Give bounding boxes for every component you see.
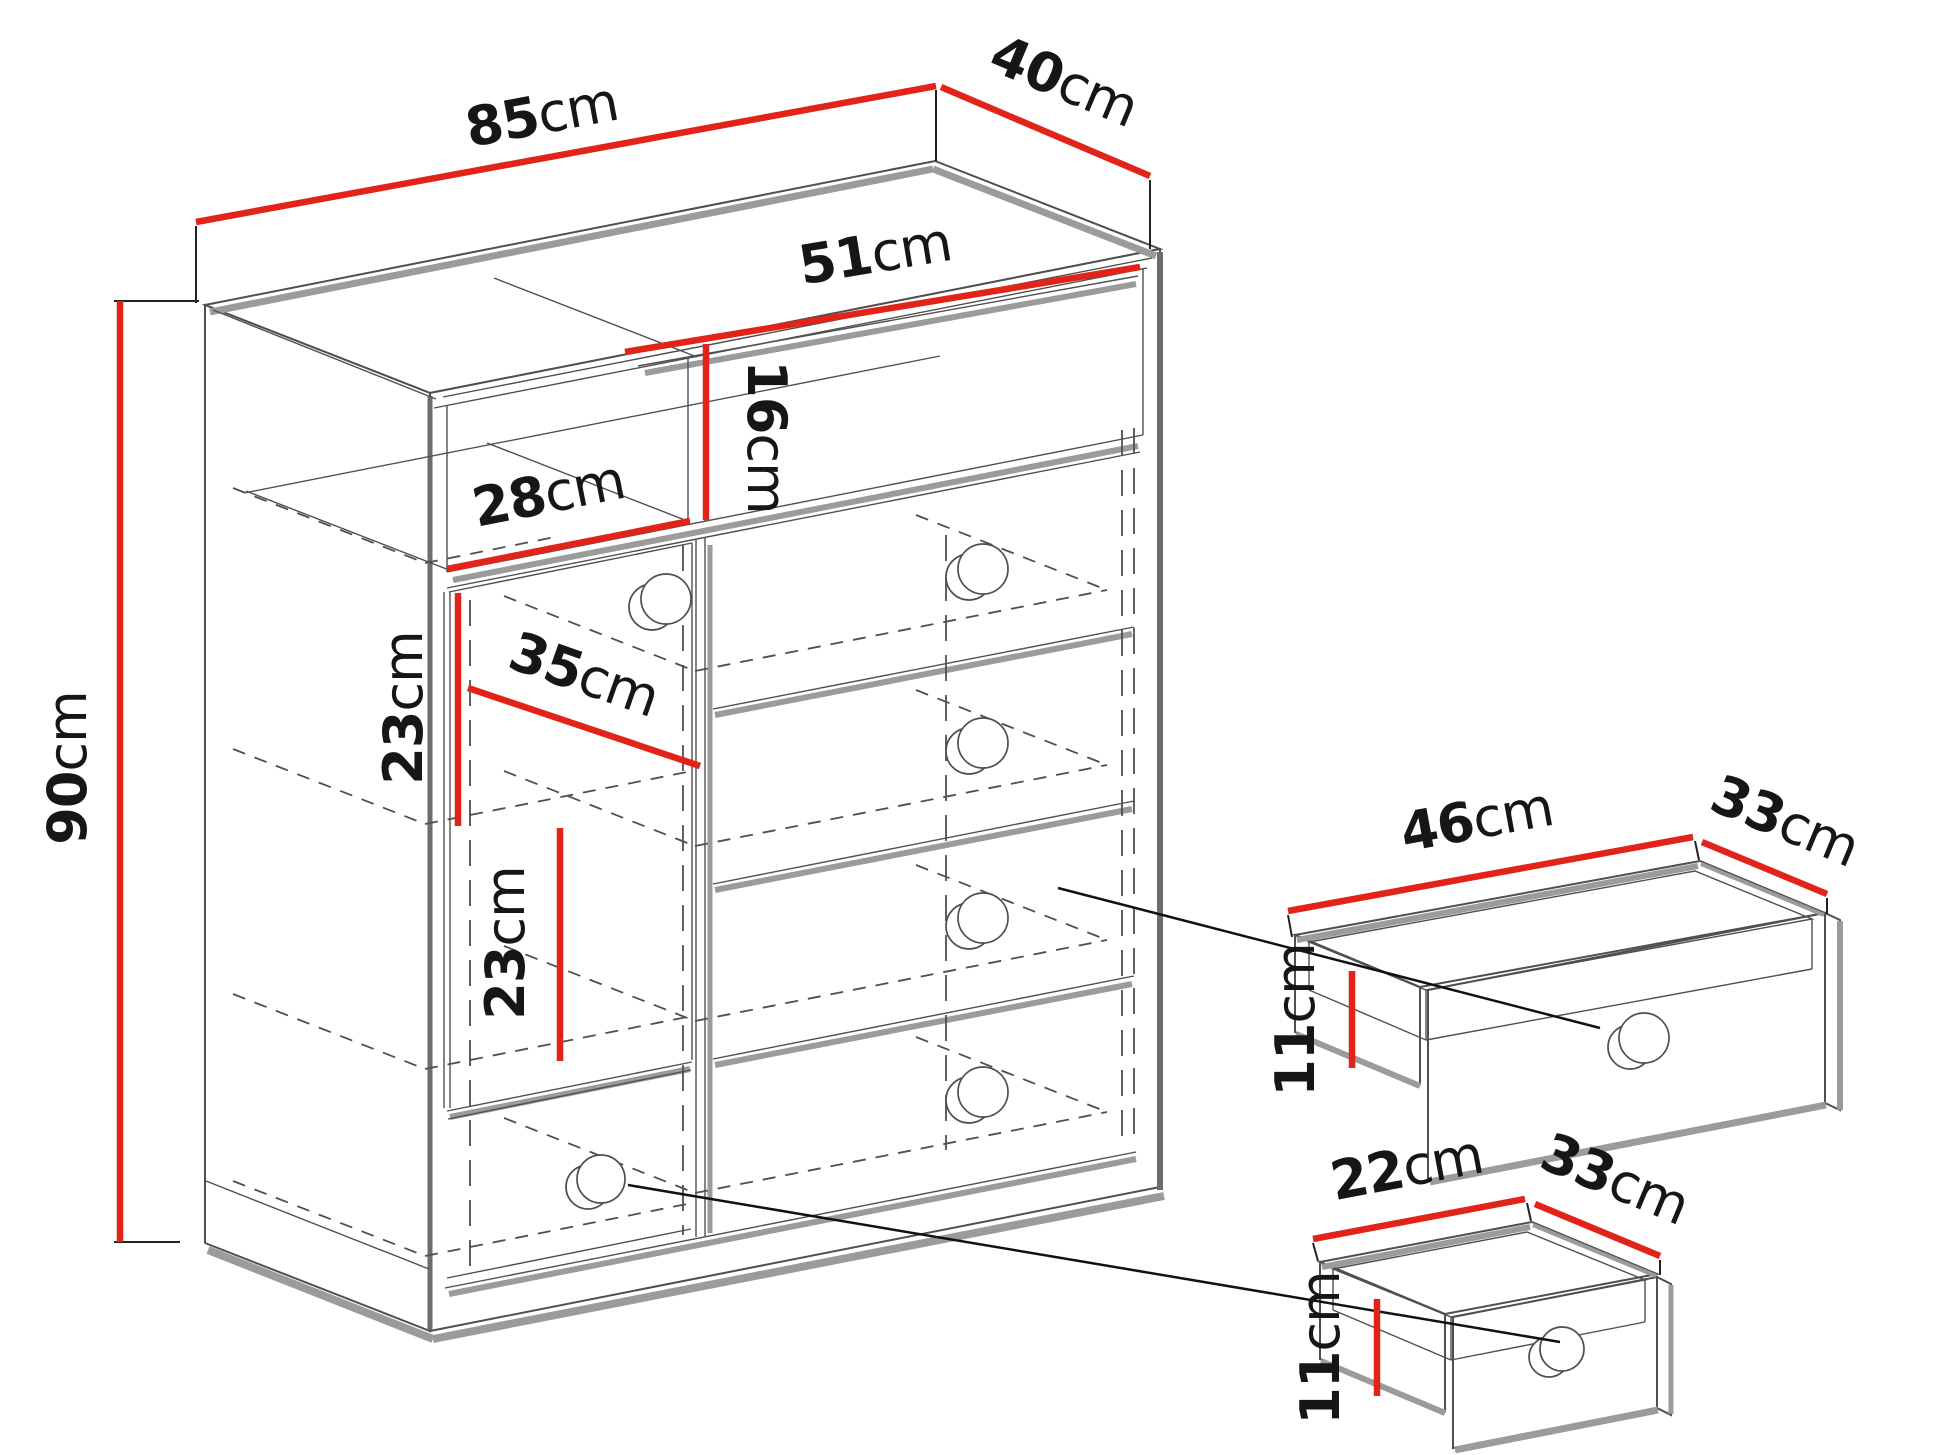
main-cabinet xyxy=(205,161,1164,1339)
label-drawerA-depth: 33cm xyxy=(1702,762,1868,879)
label-drawerA-width: 46cm xyxy=(1396,775,1558,865)
dimension-diagram: 85cm 40cm 90cm 51cm 16cm 28cm 35cm 23cm … xyxy=(0,0,1940,1455)
small-drawer-detail xyxy=(1320,1222,1671,1450)
label-drawerB-width: 22cm xyxy=(1325,1123,1487,1213)
label-upper-gap: 23cm xyxy=(372,631,435,784)
label-niche-height: 16cm xyxy=(735,360,798,513)
label-drawerA-height: 11cm xyxy=(1264,943,1327,1096)
cabinet-left-side-face xyxy=(205,305,430,1331)
label-cabinet-depth: 40cm xyxy=(981,22,1147,140)
label-lower-gap: 23cm xyxy=(474,866,537,1019)
label-drawerB-height: 11cm xyxy=(1289,1271,1352,1424)
label-cabinet-height: 90cm xyxy=(36,691,99,844)
diagram-svg: 85cm 40cm 90cm 51cm 16cm 28cm 35cm 23cm … xyxy=(0,0,1940,1455)
